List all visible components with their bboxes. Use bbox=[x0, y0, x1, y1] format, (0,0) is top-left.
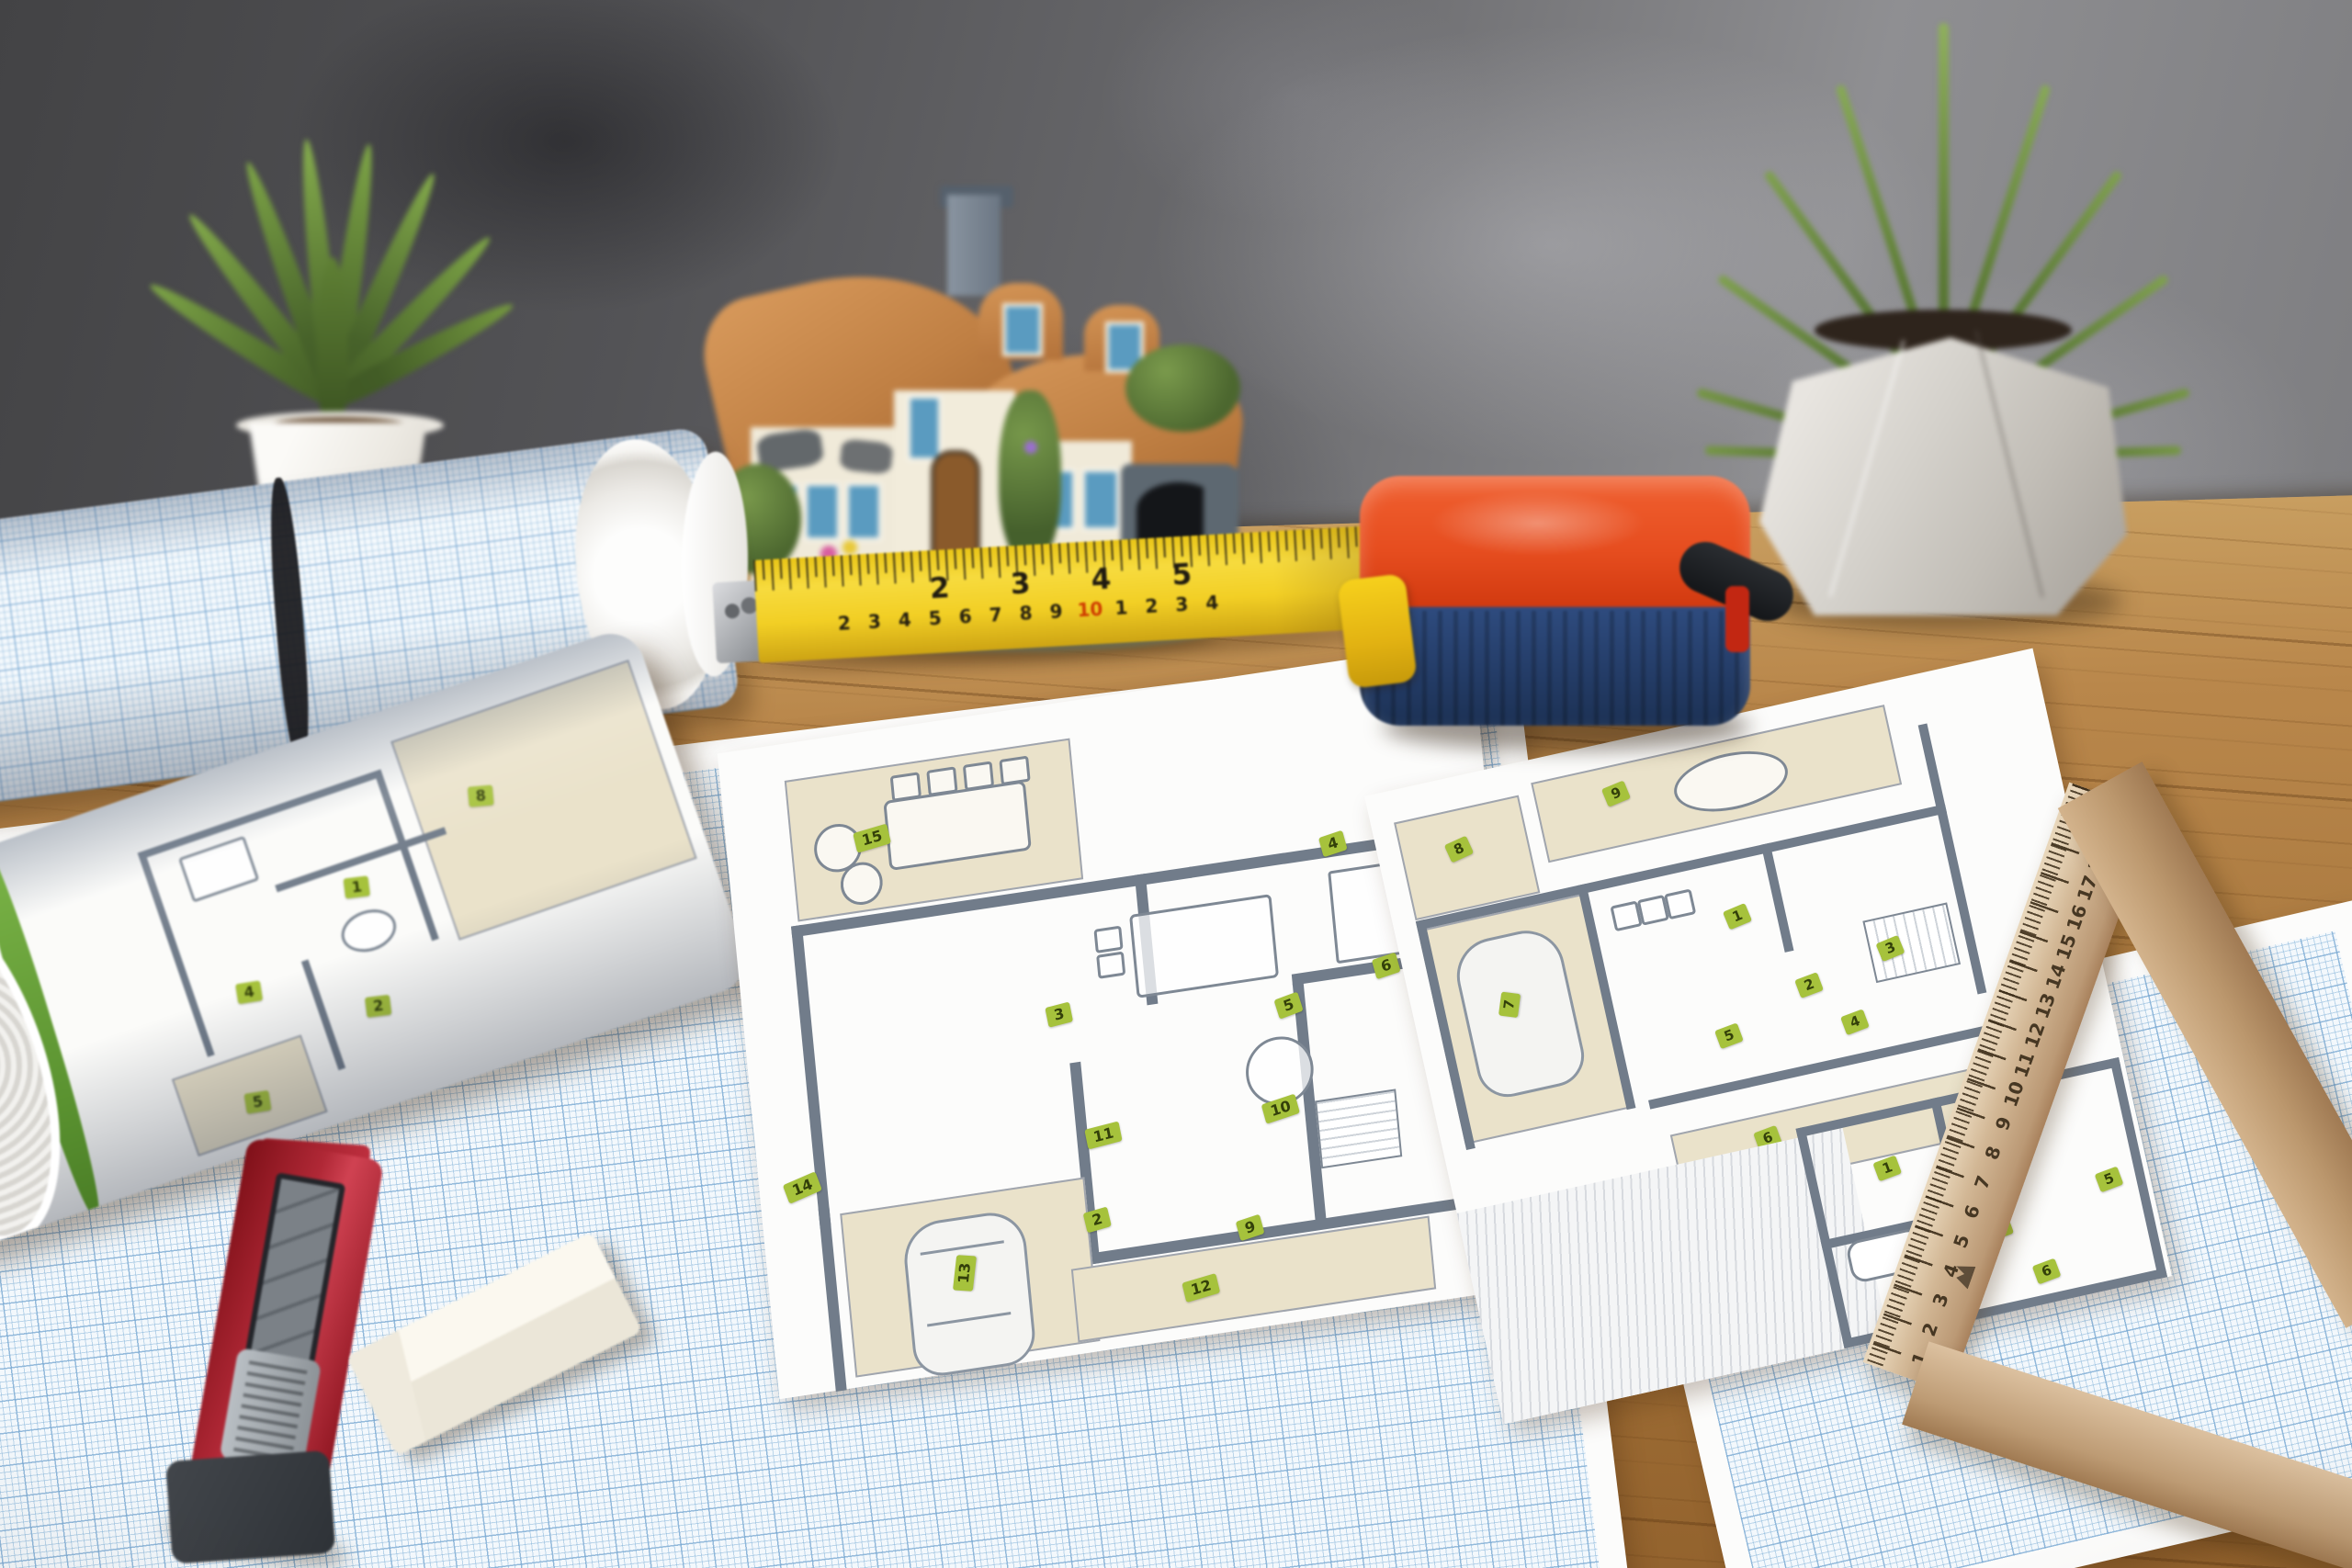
tape-number-highlight: 10 bbox=[1077, 598, 1103, 622]
tape-number: 2 bbox=[1145, 594, 1159, 617]
tape-number: 9 bbox=[1049, 600, 1063, 623]
room-label: 7 bbox=[1498, 991, 1521, 1018]
tape-number: 4 bbox=[1091, 562, 1113, 596]
body-ridges bbox=[1360, 611, 1750, 726]
flower bbox=[1024, 441, 1037, 454]
tape-body-shell bbox=[1360, 476, 1750, 726]
tape-number: 2 bbox=[837, 612, 851, 635]
tape-number: 4 bbox=[898, 608, 911, 631]
house-window bbox=[845, 482, 882, 541]
room-label: 4 bbox=[1840, 1009, 1870, 1035]
room-label: 11 bbox=[1084, 1121, 1123, 1149]
chair bbox=[999, 756, 1030, 786]
room-label: 13 bbox=[953, 1255, 977, 1292]
body-glare bbox=[1430, 491, 1645, 556]
room-label: 2 bbox=[1794, 972, 1824, 998]
kitchen-unit bbox=[1664, 888, 1696, 919]
tape-number: 5 bbox=[1171, 558, 1193, 592]
chair bbox=[1096, 952, 1125, 979]
room-label: 3 bbox=[1045, 1001, 1073, 1027]
clip-red-detail bbox=[1725, 586, 1749, 652]
garage-car bbox=[901, 1208, 1038, 1380]
room-label: 5 bbox=[2095, 1166, 2124, 1192]
bush bbox=[1125, 344, 1240, 432]
house-window bbox=[1081, 468, 1120, 531]
house-window bbox=[907, 395, 942, 461]
plan-wall bbox=[1761, 843, 1794, 953]
tape-number: 1 bbox=[1114, 596, 1128, 619]
tape-number: 4 bbox=[1205, 592, 1219, 615]
room-label: 5 bbox=[1714, 1022, 1744, 1049]
tape-number: 3 bbox=[1175, 593, 1189, 616]
pine-plant-pot bbox=[1727, 0, 2168, 657]
tape-number: 3 bbox=[1010, 567, 1032, 601]
tape-number: 7 bbox=[989, 604, 1002, 626]
room-label: 6 bbox=[2032, 1258, 2062, 1284]
sofa bbox=[1129, 894, 1279, 998]
tape-number: 3 bbox=[867, 610, 881, 633]
knife-end-cap bbox=[165, 1450, 335, 1564]
tape-number: 2 bbox=[929, 571, 951, 605]
tape-number: 8 bbox=[1019, 602, 1033, 625]
room-label: 1 bbox=[1723, 903, 1752, 931]
dormer-window bbox=[1002, 303, 1043, 356]
stairs bbox=[1315, 1089, 1402, 1168]
room-label: 1 bbox=[1872, 1155, 1902, 1181]
tape-number: 5 bbox=[928, 607, 942, 630]
chair bbox=[926, 766, 957, 796]
chair bbox=[963, 761, 994, 791]
timber-accent bbox=[839, 438, 893, 475]
tape-lock-button bbox=[1337, 573, 1418, 689]
slider-grip-ridges bbox=[233, 1359, 308, 1461]
chair bbox=[890, 772, 922, 802]
chair bbox=[1093, 926, 1123, 953]
floor-plan-sheet-center: 15 14 3 4 5 6 7 11 2 10 9 13 12 bbox=[718, 641, 1534, 1399]
photo-scene: 8 1 4 2 5 bbox=[0, 0, 2352, 1568]
tape-measure-body bbox=[1351, 468, 1773, 753]
chimney bbox=[947, 195, 1001, 296]
house-window bbox=[804, 482, 841, 541]
tape-number: 6 bbox=[958, 605, 972, 628]
